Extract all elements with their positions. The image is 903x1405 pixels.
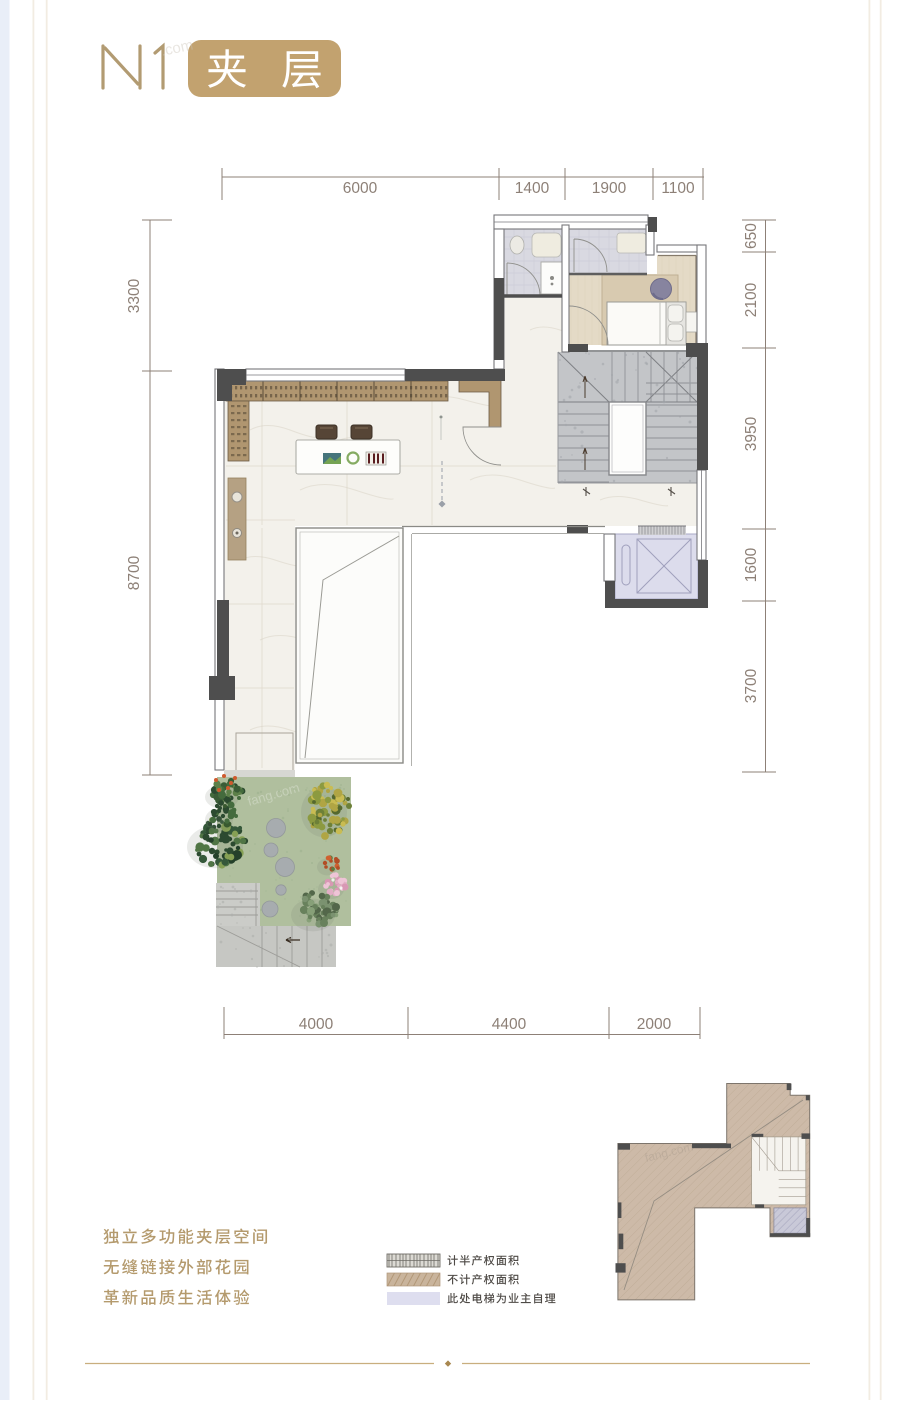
svg-text:1400: 1400 (515, 180, 550, 197)
svg-text:4400: 4400 (492, 1016, 527, 1033)
svg-text:3300: 3300 (126, 278, 143, 313)
svg-text:1600: 1600 (743, 547, 760, 582)
svg-text:3950: 3950 (743, 416, 760, 451)
svg-text:1100: 1100 (661, 180, 695, 197)
svg-text:3700: 3700 (743, 668, 760, 703)
svg-text:1900: 1900 (592, 180, 627, 197)
svg-text:8700: 8700 (126, 555, 143, 590)
svg-text:650: 650 (743, 223, 760, 249)
svg-text:2000: 2000 (637, 1016, 672, 1033)
svg-text:2100: 2100 (743, 282, 760, 317)
svg-text:4000: 4000 (299, 1016, 334, 1033)
svg-text:6000: 6000 (343, 180, 378, 197)
